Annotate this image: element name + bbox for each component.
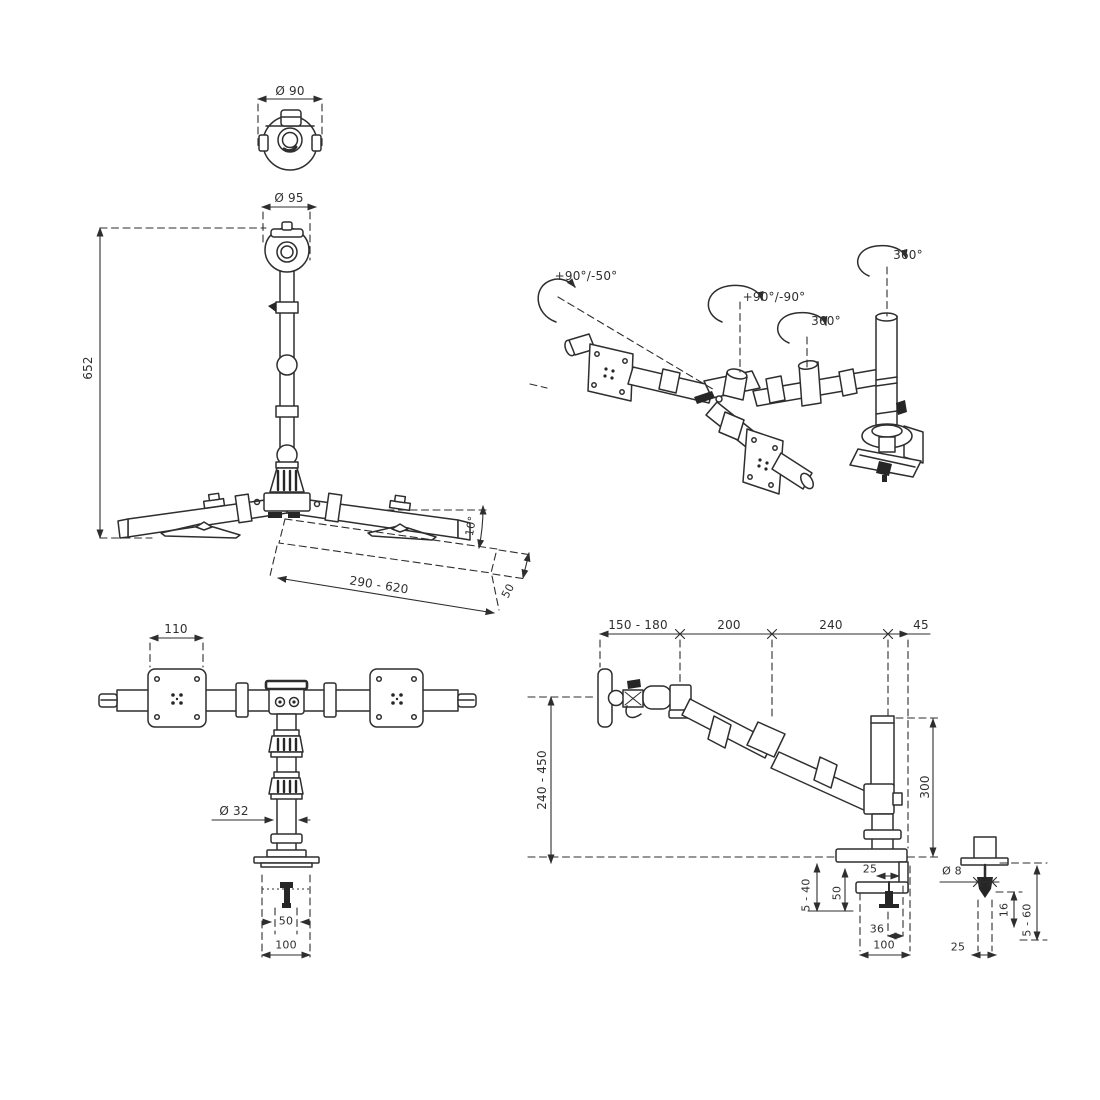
- dim-label-pole-height: 300: [919, 775, 931, 799]
- side-view-drawing: [528, 630, 1047, 956]
- dim-label-vesa-width: 110: [164, 623, 188, 635]
- dim-label-depth-seg3: 240: [819, 619, 843, 631]
- dim-label-head-diameter: Ø 95: [274, 192, 303, 204]
- technical-drawing-page: Ø 90 Ø 95 652 290 - 620 10° 50 +90°/-50°…: [0, 0, 1100, 1100]
- dim-label-pole-diameter: Ø 32: [219, 805, 248, 817]
- crossbar-front-view-drawing: [99, 638, 476, 957]
- dim-label-bolt-diameter: Ø 8: [942, 866, 962, 877]
- dim-label-grommet-thickness: 5 - 60: [1022, 903, 1033, 936]
- dim-label-clamp-jaw: 25: [863, 864, 877, 875]
- dim-label-grommet-width: 25: [951, 942, 965, 953]
- dim-label-clamp-inner-height: 50: [832, 886, 843, 900]
- dim-label-clamp-width: 100: [275, 940, 297, 951]
- dim-label-height-range: 240 - 450: [536, 750, 548, 810]
- dim-label-depth-seg1: 150 - 180: [608, 619, 668, 631]
- front-view-drawing: [100, 207, 532, 613]
- top-view-drawing: [258, 99, 322, 170]
- dim-label-tilt-angle: 10°: [464, 515, 478, 537]
- dim-label-sleeve-length: 16: [999, 903, 1010, 917]
- rotation-label-base-rotation: 360°: [893, 249, 923, 261]
- diagram-linework: [0, 0, 1100, 1100]
- pole-collar-lower: [269, 772, 303, 799]
- rotation-label-tilt-range: +90°/-50°: [555, 270, 618, 282]
- rotation-label-arm-rotation: 360°: [811, 315, 841, 327]
- dim-label-depth-seg2: 200: [717, 619, 741, 631]
- rotation-label-pivot-range: +90°/-90°: [743, 291, 806, 303]
- dim-label-top-diameter: Ø 90: [275, 85, 304, 97]
- dim-label-side-clamp-width: 100: [873, 940, 895, 951]
- dim-label-column-height: 652: [82, 356, 94, 380]
- dim-label-desk-thickness: 5 - 40: [801, 878, 812, 911]
- dim-label-depth-seg4: 45: [913, 619, 929, 631]
- pole-collar-upper: [269, 730, 303, 757]
- dim-label-bolt-offset: 36: [870, 924, 884, 935]
- dim-label-clamp-depth: 50: [279, 916, 293, 927]
